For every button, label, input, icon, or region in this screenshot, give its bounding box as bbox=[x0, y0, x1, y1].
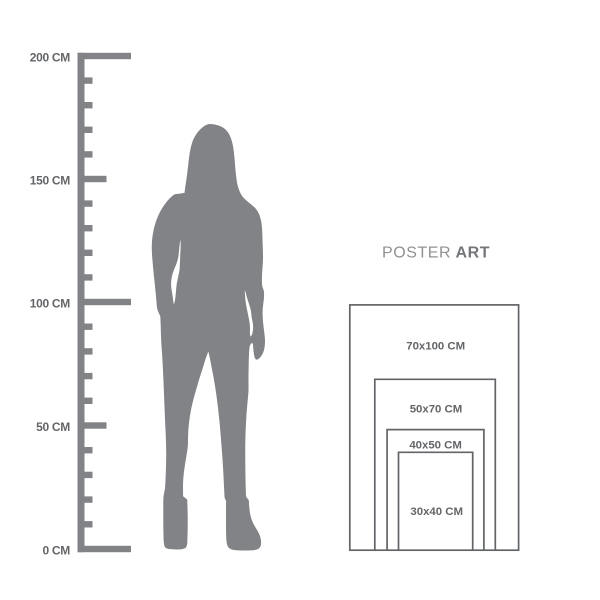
svg-text:50x70 CM: 50x70 CM bbox=[410, 403, 463, 415]
svg-text:40x50 CM: 40x50 CM bbox=[409, 439, 462, 451]
svg-text:0 CM: 0 CM bbox=[43, 544, 71, 558]
svg-text:100 CM: 100 CM bbox=[30, 297, 71, 311]
svg-text:200 CM: 200 CM bbox=[30, 51, 71, 65]
svg-text:70x100 CM: 70x100 CM bbox=[406, 341, 465, 353]
svg-text:50 CM: 50 CM bbox=[36, 420, 70, 434]
svg-text:150 CM: 150 CM bbox=[30, 174, 71, 188]
svg-text:30x40 CM: 30x40 CM bbox=[410, 506, 463, 518]
svg-text:POSTER ART: POSTER ART bbox=[382, 244, 490, 261]
